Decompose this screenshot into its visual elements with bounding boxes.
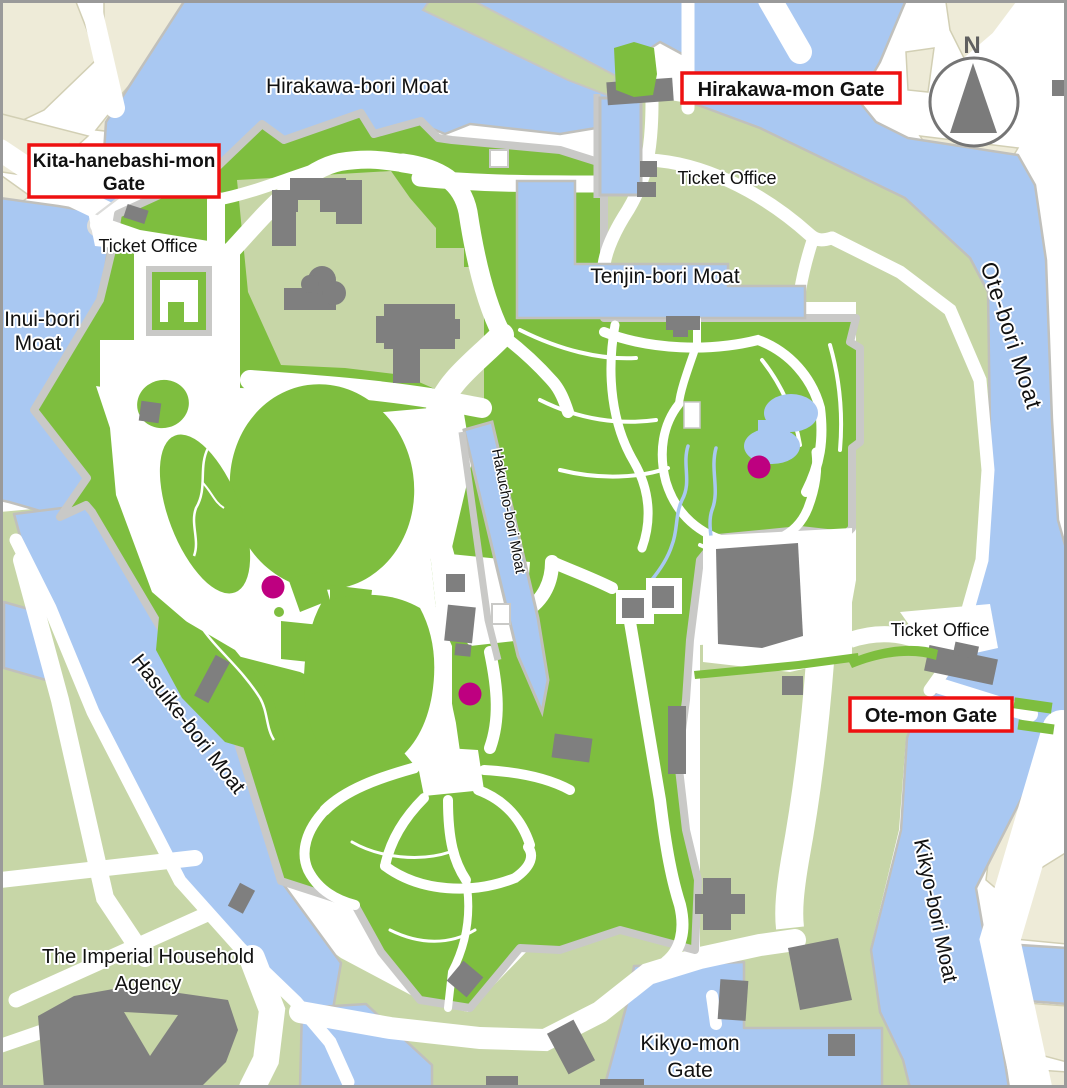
svg-text:Kikyo-mon: Kikyo-mon	[640, 1032, 739, 1055]
svg-text:Gate: Gate	[103, 174, 145, 195]
svg-text:Tenjin-bori Moat: Tenjin-bori Moat	[590, 265, 740, 288]
svg-text:N: N	[963, 32, 980, 59]
svg-text:Hirakawa-mon Gate: Hirakawa-mon Gate	[698, 79, 885, 101]
svg-text:Ote-mon Gate: Ote-mon Gate	[865, 705, 997, 727]
svg-text:Gate: Gate	[667, 1059, 713, 1082]
svg-text:Ticket Office: Ticket Office	[98, 236, 197, 256]
svg-text:Moat: Moat	[15, 332, 62, 355]
svg-text:Hirakawa-bori Moat: Hirakawa-bori Moat	[266, 75, 448, 98]
svg-text:Agency: Agency	[115, 973, 182, 995]
svg-text:Kita-hanebashi-mon: Kita-hanebashi-mon	[33, 151, 216, 172]
svg-text:The Imperial Household: The Imperial Household	[42, 946, 254, 968]
svg-text:Ticket Office: Ticket Office	[890, 620, 989, 640]
svg-text:Inui-bori: Inui-bori	[4, 308, 80, 331]
svg-text:Ticket Office: Ticket Office	[677, 168, 776, 188]
